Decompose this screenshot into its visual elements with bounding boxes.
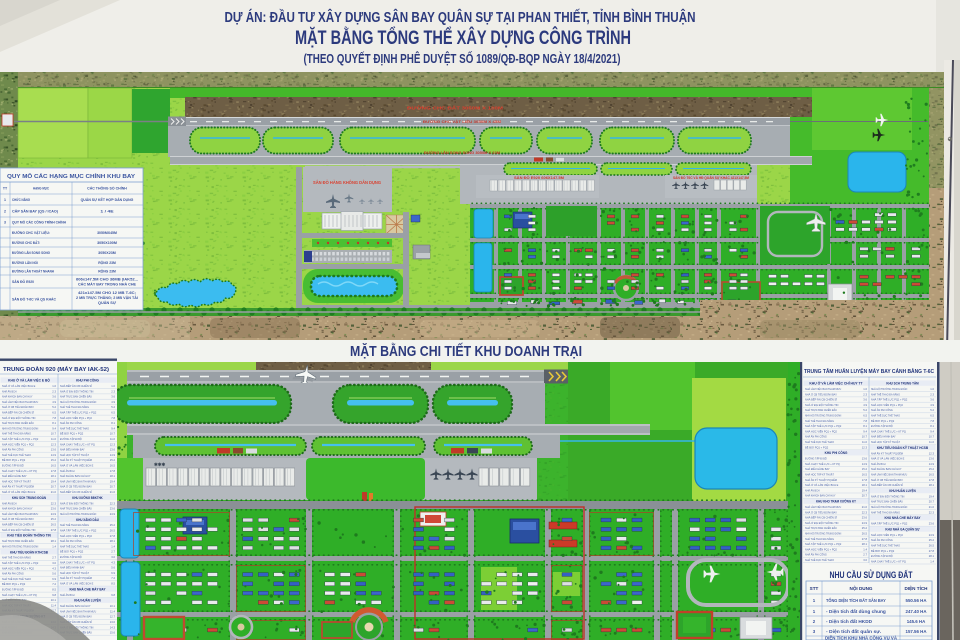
svg-text:KHU NHÀ CHE MÁY BAY: KHU NHÀ CHE MÁY BAY xyxy=(69,586,106,591)
svg-text:27.8: 27.8 xyxy=(862,537,868,541)
svg-text:2: 2 xyxy=(4,210,6,214)
svg-text:16.5: 16.5 xyxy=(51,464,57,468)
svg-text:7.8: 7.8 xyxy=(863,419,867,423)
svg-text:3: 3 xyxy=(4,221,6,225)
svg-text:MẶT BẰNG TỔNG THỂ XÂY DỰNG CÔN: MẶT BẰNG TỔNG THỂ XÂY DỰNG CÔNG TRÌNH xyxy=(295,25,631,49)
svg-text:6.5: 6.5 xyxy=(52,411,56,415)
svg-text:22.3: 22.3 xyxy=(51,501,57,505)
svg-text:3.6: 3.6 xyxy=(111,395,115,399)
svg-text:24.9: 24.9 xyxy=(862,521,868,525)
svg-text:23.6: 23.6 xyxy=(862,516,868,520)
svg-text:KHU XĂNG DẦU: KHU XĂNG DẦU xyxy=(76,517,99,522)
svg-text:RỘNG 23M: RỘNG 23M xyxy=(98,269,116,274)
svg-text:5.6: 5.6 xyxy=(111,566,115,570)
svg-text:3050X23M: 3050X23M xyxy=(98,251,116,255)
svg-text:NHÀ ĂN BCH: NHÀ ĂN BCH xyxy=(805,488,820,492)
svg-text:KHU HUẤN LUYỆN: KHU HUẤN LUYỆN xyxy=(74,598,101,603)
svg-text:11.0: 11.0 xyxy=(110,437,116,441)
svg-text:2.3: 2.3 xyxy=(111,389,115,393)
svg-text:21.0: 21.0 xyxy=(862,505,868,509)
svg-text:25.2: 25.2 xyxy=(929,538,935,542)
svg-text:13.6: 13.6 xyxy=(51,448,57,452)
svg-text:28.1: 28.1 xyxy=(862,542,868,546)
svg-text:9.8: 9.8 xyxy=(52,593,56,597)
svg-text:13.6: 13.6 xyxy=(110,448,116,452)
svg-text:SÂN ĐỖ T-6C VÀ QS KHÁC: SÂN ĐỖ T-6C VÀ QS KHÁC xyxy=(12,297,56,302)
svg-text:17.8: 17.8 xyxy=(51,469,57,473)
svg-text:5.2: 5.2 xyxy=(863,408,867,412)
svg-text:7.8: 7.8 xyxy=(930,419,934,423)
svg-text:TRUNG ĐOÀN 920 (MÁY BAY IAK-52: TRUNG ĐOÀN 920 (MÁY BAY IAK-52) xyxy=(3,366,109,373)
svg-text:20.7: 20.7 xyxy=(862,494,868,498)
svg-text:157.56 HA: 157.56 HA xyxy=(906,629,928,634)
svg-text:CÁC THÔNG SỐ CHÍNH: CÁC THÔNG SỐ CHÍNH xyxy=(87,186,127,191)
svg-text:16.5: 16.5 xyxy=(110,464,116,468)
svg-text:KHU Ở VÀ LÀM VIỆC CHỈ HUY TT: KHU Ở VÀ LÀM VIỆC CHỈ HUY TT xyxy=(809,381,863,386)
svg-text:NHÀ ĂN BCH: NHÀ ĂN BCH xyxy=(2,389,17,393)
svg-text:21.0: 21.0 xyxy=(929,505,935,509)
svg-text:1 / 4E: 1 / 4E xyxy=(100,210,114,214)
svg-text:KHU NHÀ CHE MÁY BAY: KHU NHÀ CHE MÁY BAY xyxy=(884,515,921,520)
svg-text:28.1: 28.1 xyxy=(51,539,57,543)
svg-text:1.0: 1.0 xyxy=(111,384,115,388)
svg-text:ĐƯỜNG CHC VẬT LIỆU:: ĐƯỜNG CHC VẬT LIỆU: xyxy=(12,230,50,235)
svg-text:17.8: 17.8 xyxy=(862,478,868,482)
svg-text:QUÂN SỰ KẾT HỢP DÂN DỤNG: QUÂN SỰ KẾT HỢP DÂN DỤNG xyxy=(81,197,134,202)
svg-text:2.3: 2.3 xyxy=(52,389,56,393)
svg-text:247.40 HA: 247.40 HA xyxy=(906,609,928,614)
svg-text:STT: STT xyxy=(810,586,819,591)
svg-text:10.1: 10.1 xyxy=(51,598,57,602)
svg-text:19.4: 19.4 xyxy=(862,488,868,492)
svg-text:8.1: 8.1 xyxy=(863,424,867,428)
svg-text:ĐƯỜNG CHC ĐẤT 3050M X 100M: ĐƯỜNG CHC ĐẤT 3050M X 100M xyxy=(407,104,503,111)
svg-text:1.0: 1.0 xyxy=(52,384,56,388)
svg-text:8.5: 8.5 xyxy=(111,582,115,586)
svg-text:KHU TIỂU ĐOÀN THÔNG TIN: KHU TIỂU ĐOÀN THÔNG TIN xyxy=(7,533,51,538)
svg-text:2.7: 2.7 xyxy=(863,553,867,557)
svg-text:NHÀ ĂN BCH: NHÀ ĂN BCH xyxy=(60,593,75,597)
svg-text:QUÂN SỰ: QUÂN SỰ xyxy=(98,300,116,305)
svg-text:27.8: 27.8 xyxy=(110,534,116,538)
svg-text:3.0: 3.0 xyxy=(52,561,56,565)
svg-text:12.3: 12.3 xyxy=(929,451,935,455)
svg-text:MẶT BẰNG CHI TIẾT KHU DOANH TR: MẶT BẰNG CHI TIẾT KHU DOANH TRẠI xyxy=(350,342,582,360)
svg-text:11.4: 11.4 xyxy=(51,603,57,607)
svg-text:6.9: 6.9 xyxy=(52,577,56,581)
svg-text:23.6: 23.6 xyxy=(51,507,57,511)
svg-text:9.4: 9.4 xyxy=(52,426,56,430)
svg-text:DỰ ÁN: ĐẦU TƯ XÂY DỰNG SÂN BAY: DỰ ÁN: ĐẦU TƯ XÂY DỰNG SÂN BAY QUÂN SỰ T… xyxy=(225,8,696,26)
svg-text:2.7: 2.7 xyxy=(111,550,115,554)
svg-text:6.5: 6.5 xyxy=(930,414,934,418)
svg-text:10.7: 10.7 xyxy=(51,432,57,436)
svg-text:SÂN ĐỖ T6C VÀ HĐ QUÂN SỰ KHÁC: SÂN ĐỖ T6C VÀ HĐ QUÂN SỰ KHÁC 421X147.5M xyxy=(673,175,749,180)
svg-text:7.8: 7.8 xyxy=(52,416,56,420)
svg-text:15.6: 15.6 xyxy=(110,631,116,635)
svg-text:KHU TIỂU ĐOÀN KỸ THUẬT HCSB: KHU TIỂU ĐOÀN KỸ THUẬT HCSB xyxy=(877,445,929,450)
svg-text:12.3: 12.3 xyxy=(110,442,116,446)
svg-text:4.3: 4.3 xyxy=(111,560,115,564)
svg-text:10.7: 10.7 xyxy=(862,435,868,439)
svg-text:4.9: 4.9 xyxy=(863,403,867,407)
svg-text:20.7: 20.7 xyxy=(110,485,116,489)
svg-text:15.2: 15.2 xyxy=(51,458,57,462)
svg-text:26.5: 26.5 xyxy=(862,532,868,536)
svg-text:9.8: 9.8 xyxy=(111,593,115,597)
svg-text:23.6: 23.6 xyxy=(110,507,116,511)
svg-text:24.9: 24.9 xyxy=(929,533,935,537)
svg-text:14.9: 14.9 xyxy=(862,462,868,466)
svg-text:18.1: 18.1 xyxy=(51,474,57,478)
svg-text:9.4: 9.4 xyxy=(111,426,115,430)
svg-text:4.9: 4.9 xyxy=(111,400,115,404)
svg-text:1.4: 1.4 xyxy=(863,547,867,551)
svg-text:12.7: 12.7 xyxy=(110,615,116,619)
svg-text:TỔNG DIỆN TÍCH ĐẤT SÂN BAY: TỔNG DIỆN TÍCH ĐẤT SÂN BAY xyxy=(826,598,886,603)
svg-text:KHU PHI CÔNG: KHU PHI CÔNG xyxy=(825,450,848,455)
svg-text:CÁC MÁY BAY TRONG NHÀ CHE: CÁC MÁY BAY TRONG NHÀ CHE xyxy=(78,282,137,287)
svg-text:3050MX45M: 3050MX45M xyxy=(97,231,117,235)
svg-text:DIỆN TÍCH KHU NHÀ CÔNG VỤ VÀ: DIỆN TÍCH KHU NHÀ CÔNG VỤ VÀ xyxy=(825,636,898,640)
svg-text:KHU XƯỞNG BĐKTHK: KHU XƯỞNG BĐKTHK xyxy=(72,495,103,500)
svg-text:28.1: 28.1 xyxy=(110,539,116,543)
svg-text:KHU Ở VÀ LÀM VIỆC E BỘ: KHU Ở VÀ LÀM VIỆC E BỘ xyxy=(8,378,50,383)
svg-text:27.8: 27.8 xyxy=(51,528,57,532)
svg-text:NỘI DUNG: NỘI DUNG xyxy=(850,584,873,591)
svg-text:3.0: 3.0 xyxy=(863,558,867,562)
svg-text:24.9: 24.9 xyxy=(110,512,116,516)
svg-text:5.2: 5.2 xyxy=(52,405,56,409)
svg-text:14.3: 14.3 xyxy=(110,625,116,629)
svg-text:8.5: 8.5 xyxy=(52,588,56,592)
svg-text:HẠNG MỤC: HẠNG MỤC xyxy=(33,187,49,191)
svg-text:13.6: 13.6 xyxy=(862,457,868,461)
svg-text:10.7: 10.7 xyxy=(110,432,116,436)
svg-text:5.6: 5.6 xyxy=(52,572,56,576)
svg-text:22.3: 22.3 xyxy=(110,501,116,505)
svg-text:17.8: 17.8 xyxy=(110,469,116,473)
svg-text:1.4: 1.4 xyxy=(52,544,56,548)
svg-text:DIỆN TÍCH: DIỆN TÍCH xyxy=(905,584,929,591)
svg-text:26.5: 26.5 xyxy=(929,544,935,548)
svg-text:8.1: 8.1 xyxy=(930,424,934,428)
svg-text:QUY MÔ CÁC CÔNG TRÌNH CHÍNH: QUY MÔ CÁC CÔNG TRÌNH CHÍNH xyxy=(12,220,66,225)
svg-text:13.0: 13.0 xyxy=(110,620,116,624)
svg-text:KHU SCH TRUNG TÂM: KHU SCH TRUNG TÂM xyxy=(886,381,918,386)
svg-text:12.3: 12.3 xyxy=(862,445,868,449)
svg-text:6.5: 6.5 xyxy=(111,411,115,415)
svg-text:NHU CẦU SỬ DỤNG ĐẤT: NHU CẦU SỬ DỤNG ĐẤT xyxy=(830,569,913,580)
svg-text:24.9: 24.9 xyxy=(51,512,57,516)
svg-text:2.3: 2.3 xyxy=(863,392,867,396)
svg-text:13.6: 13.6 xyxy=(929,457,935,461)
svg-text:18.1: 18.1 xyxy=(862,483,868,487)
svg-text:- Diện tích đất dùng chung: - Diện tích đất dùng chung xyxy=(826,609,886,614)
svg-text:19.4: 19.4 xyxy=(929,494,935,498)
svg-text:23.6: 23.6 xyxy=(929,522,935,526)
svg-text:22.3: 22.3 xyxy=(862,510,868,514)
svg-text:1.4: 1.4 xyxy=(930,559,934,563)
svg-text:12.3: 12.3 xyxy=(51,442,57,446)
svg-text:KHU SCH TRUNG ĐOÀN: KHU SCH TRUNG ĐOÀN xyxy=(12,495,47,500)
svg-text:9.4: 9.4 xyxy=(863,429,867,433)
svg-text:6.5: 6.5 xyxy=(863,414,867,418)
svg-text:10.7: 10.7 xyxy=(929,435,935,439)
svg-text:11.0: 11.0 xyxy=(929,440,935,444)
svg-text:3.6: 3.6 xyxy=(930,398,934,402)
svg-text:15.2: 15.2 xyxy=(110,458,116,462)
svg-text:14.9: 14.9 xyxy=(929,462,935,466)
svg-text:4.9: 4.9 xyxy=(52,400,56,404)
svg-text:1: 1 xyxy=(4,198,6,202)
svg-text:16.5: 16.5 xyxy=(929,473,935,477)
svg-text:9.4: 9.4 xyxy=(930,429,934,433)
svg-text:3.6: 3.6 xyxy=(863,398,867,402)
svg-text:19.4: 19.4 xyxy=(51,479,57,483)
svg-text:14.9: 14.9 xyxy=(51,453,57,457)
svg-text:19.4: 19.4 xyxy=(110,479,116,483)
svg-text:TRUNG TÂM HUẤN LUYỆN MÁY BAY C: TRUNG TÂM HUẤN LUYỆN MÁY BAY CÁNH BẰNG T… xyxy=(804,367,934,375)
svg-text:1.4: 1.4 xyxy=(111,544,115,548)
svg-text:8.1: 8.1 xyxy=(111,421,115,425)
svg-text:18.1: 18.1 xyxy=(929,483,935,487)
svg-text:CẤP SÂN BAY (QS / ICAO): CẤP SÂN BAY (QS / ICAO) xyxy=(12,209,58,214)
svg-text:550.56 HA: 550.56 HA xyxy=(906,598,928,603)
svg-text:21.0: 21.0 xyxy=(51,490,57,494)
svg-text:✱✱✱: ✱✱✱ xyxy=(154,462,167,467)
svg-text:1.0: 1.0 xyxy=(863,387,867,391)
svg-text:5.2: 5.2 xyxy=(111,405,115,409)
svg-text:25.2: 25.2 xyxy=(110,523,116,527)
svg-text:1.0: 1.0 xyxy=(930,387,934,391)
svg-text:20.7: 20.7 xyxy=(929,500,935,504)
svg-text:6.9: 6.9 xyxy=(111,571,115,575)
svg-text:KHU NHÀ GA QUÂN SỰ: KHU NHÀ GA QUÂN SỰ xyxy=(885,527,919,532)
svg-text:7.2: 7.2 xyxy=(111,576,115,580)
svg-text:16.5: 16.5 xyxy=(862,473,868,477)
svg-text:KHU TIỂU ĐOÀN KTHCSB: KHU TIỂU ĐOÀN KTHCSB xyxy=(10,549,48,554)
svg-text:7.2: 7.2 xyxy=(52,582,56,586)
svg-text:21.0: 21.0 xyxy=(110,490,116,494)
svg-text:26.5: 26.5 xyxy=(110,529,116,533)
svg-text:2.3: 2.3 xyxy=(930,392,934,396)
svg-text:KHU KHO TRẠM XƯỞNG KT: KHU KHO TRẠM XƯỞNG KT xyxy=(816,499,857,504)
svg-text:421x147.5M CHO 12 MB T-6C;: 421x147.5M CHO 12 MB T-6C; xyxy=(78,291,136,295)
svg-text:3.0: 3.0 xyxy=(111,555,115,559)
svg-text:ĐƯỜNG CHC VẬT LIỆU 3050M X 45M: ĐƯỜNG CHC VẬT LIỆU 3050M X 45M xyxy=(423,119,502,124)
svg-text:18.1: 18.1 xyxy=(110,474,116,478)
svg-text:RỘNG 23M: RỘNG 23M xyxy=(98,260,116,265)
svg-text:ĐƯỜNG LĂN THOÁT NHANH: ĐƯỜNG LĂN THOÁT NHANH xyxy=(12,269,54,274)
svg-text:11.0: 11.0 xyxy=(51,437,57,441)
svg-text:SÂN ĐỖ HÀNG KHÔNG DÂN DỤNG: SÂN ĐỖ HÀNG KHÔNG DÂN DỤNG xyxy=(313,180,381,185)
svg-text:- Diện tích đất HKDD: - Diện tích đất HKDD xyxy=(826,619,872,624)
svg-text:CHỨC NĂNG: CHỨC NĂNG xyxy=(12,197,30,202)
svg-text:- Diện tích đất quân sự.: - Diện tích đất quân sự. xyxy=(826,629,881,634)
svg-text:145.6 HA: 145.6 HA xyxy=(907,619,926,624)
svg-text:QUY MÔ CÁC HẠNG MỤC CHÍNH KHU: QUY MÔ CÁC HẠNG MỤC CHÍNH KHU BAY xyxy=(7,172,136,180)
svg-text:25.2: 25.2 xyxy=(862,526,868,530)
svg-text:5.2: 5.2 xyxy=(930,408,934,412)
svg-text:10.1: 10.1 xyxy=(110,604,116,608)
svg-text:22.3: 22.3 xyxy=(929,510,935,514)
svg-text:ĐƯỜNG LĂN NỐI: ĐƯỜNG LĂN NỐI xyxy=(12,260,38,265)
svg-text:4.3: 4.3 xyxy=(52,566,56,570)
svg-text:27.8: 27.8 xyxy=(929,549,935,553)
svg-text:4.9: 4.9 xyxy=(930,403,934,407)
svg-text:15.2: 15.2 xyxy=(929,467,935,471)
svg-text:11.4: 11.4 xyxy=(110,609,116,613)
svg-text:KHU PHI CÔNG: KHU PHI CÔNG xyxy=(76,378,99,383)
svg-text:15.2: 15.2 xyxy=(862,467,868,471)
svg-text:ĐƯỜNG LĂN SONG SONG: ĐƯỜNG LĂN SONG SONG xyxy=(12,250,50,255)
svg-text:25.2: 25.2 xyxy=(51,517,57,521)
svg-text:606x147.5M CHO 36MB (IAK52...: 606x147.5M CHO 36MB (IAK52... xyxy=(76,278,138,282)
svg-text:8.1: 8.1 xyxy=(52,421,56,425)
svg-text:ĐƯỜNG CHC ĐẤT:: ĐƯỜNG CHC ĐẤT: xyxy=(12,240,40,245)
svg-text:17.8: 17.8 xyxy=(929,478,935,482)
svg-text:NHÀ ĂN BCH: NHÀ ĂN BCH xyxy=(2,501,17,505)
svg-text:SÂN ĐỖ E920: SÂN ĐỖ E920 xyxy=(12,279,34,284)
svg-text:(THEO QUYẾT ĐỊNH PHÊ DUYỆT SỐ: (THEO QUYẾT ĐỊNH PHÊ DUYỆT SỐ 1089/QĐ-BQ… xyxy=(304,51,621,66)
svg-text:3.6: 3.6 xyxy=(52,395,56,399)
svg-text:2 MB TRỰC THĂNG; 2 MB VẬN TẢI: 2 MB TRỰC THĂNG; 2 MB VẬN TẢI xyxy=(76,295,138,300)
svg-text:2.7: 2.7 xyxy=(52,556,56,560)
svg-text:20.7: 20.7 xyxy=(51,485,57,489)
svg-text:28.1: 28.1 xyxy=(929,554,935,558)
svg-text:7.8: 7.8 xyxy=(111,416,115,420)
svg-text:KHU HUẤN LUYỆN: KHU HUẤN LUYỆN xyxy=(889,488,916,493)
svg-text:11.0: 11.0 xyxy=(862,440,868,444)
svg-text:SÂN ĐỖ E920 606X147.5M: SÂN ĐỖ E920 606X147.5M xyxy=(514,175,564,180)
svg-text:NHÀ ĂN BCH: NHÀ ĂN BCH xyxy=(871,462,886,466)
svg-text:26.5: 26.5 xyxy=(51,523,57,527)
svg-text:14.9: 14.9 xyxy=(110,453,116,457)
svg-text:ĐƯỜNG LĂN SONG SONG 3050M X 23: ĐƯỜNG LĂN SONG SONG 3050M X 23M xyxy=(424,150,501,155)
svg-text:3050X100M: 3050X100M xyxy=(97,241,117,245)
svg-text:NHÀ ĂN BCH: NHÀ ĂN BCH xyxy=(60,469,75,473)
